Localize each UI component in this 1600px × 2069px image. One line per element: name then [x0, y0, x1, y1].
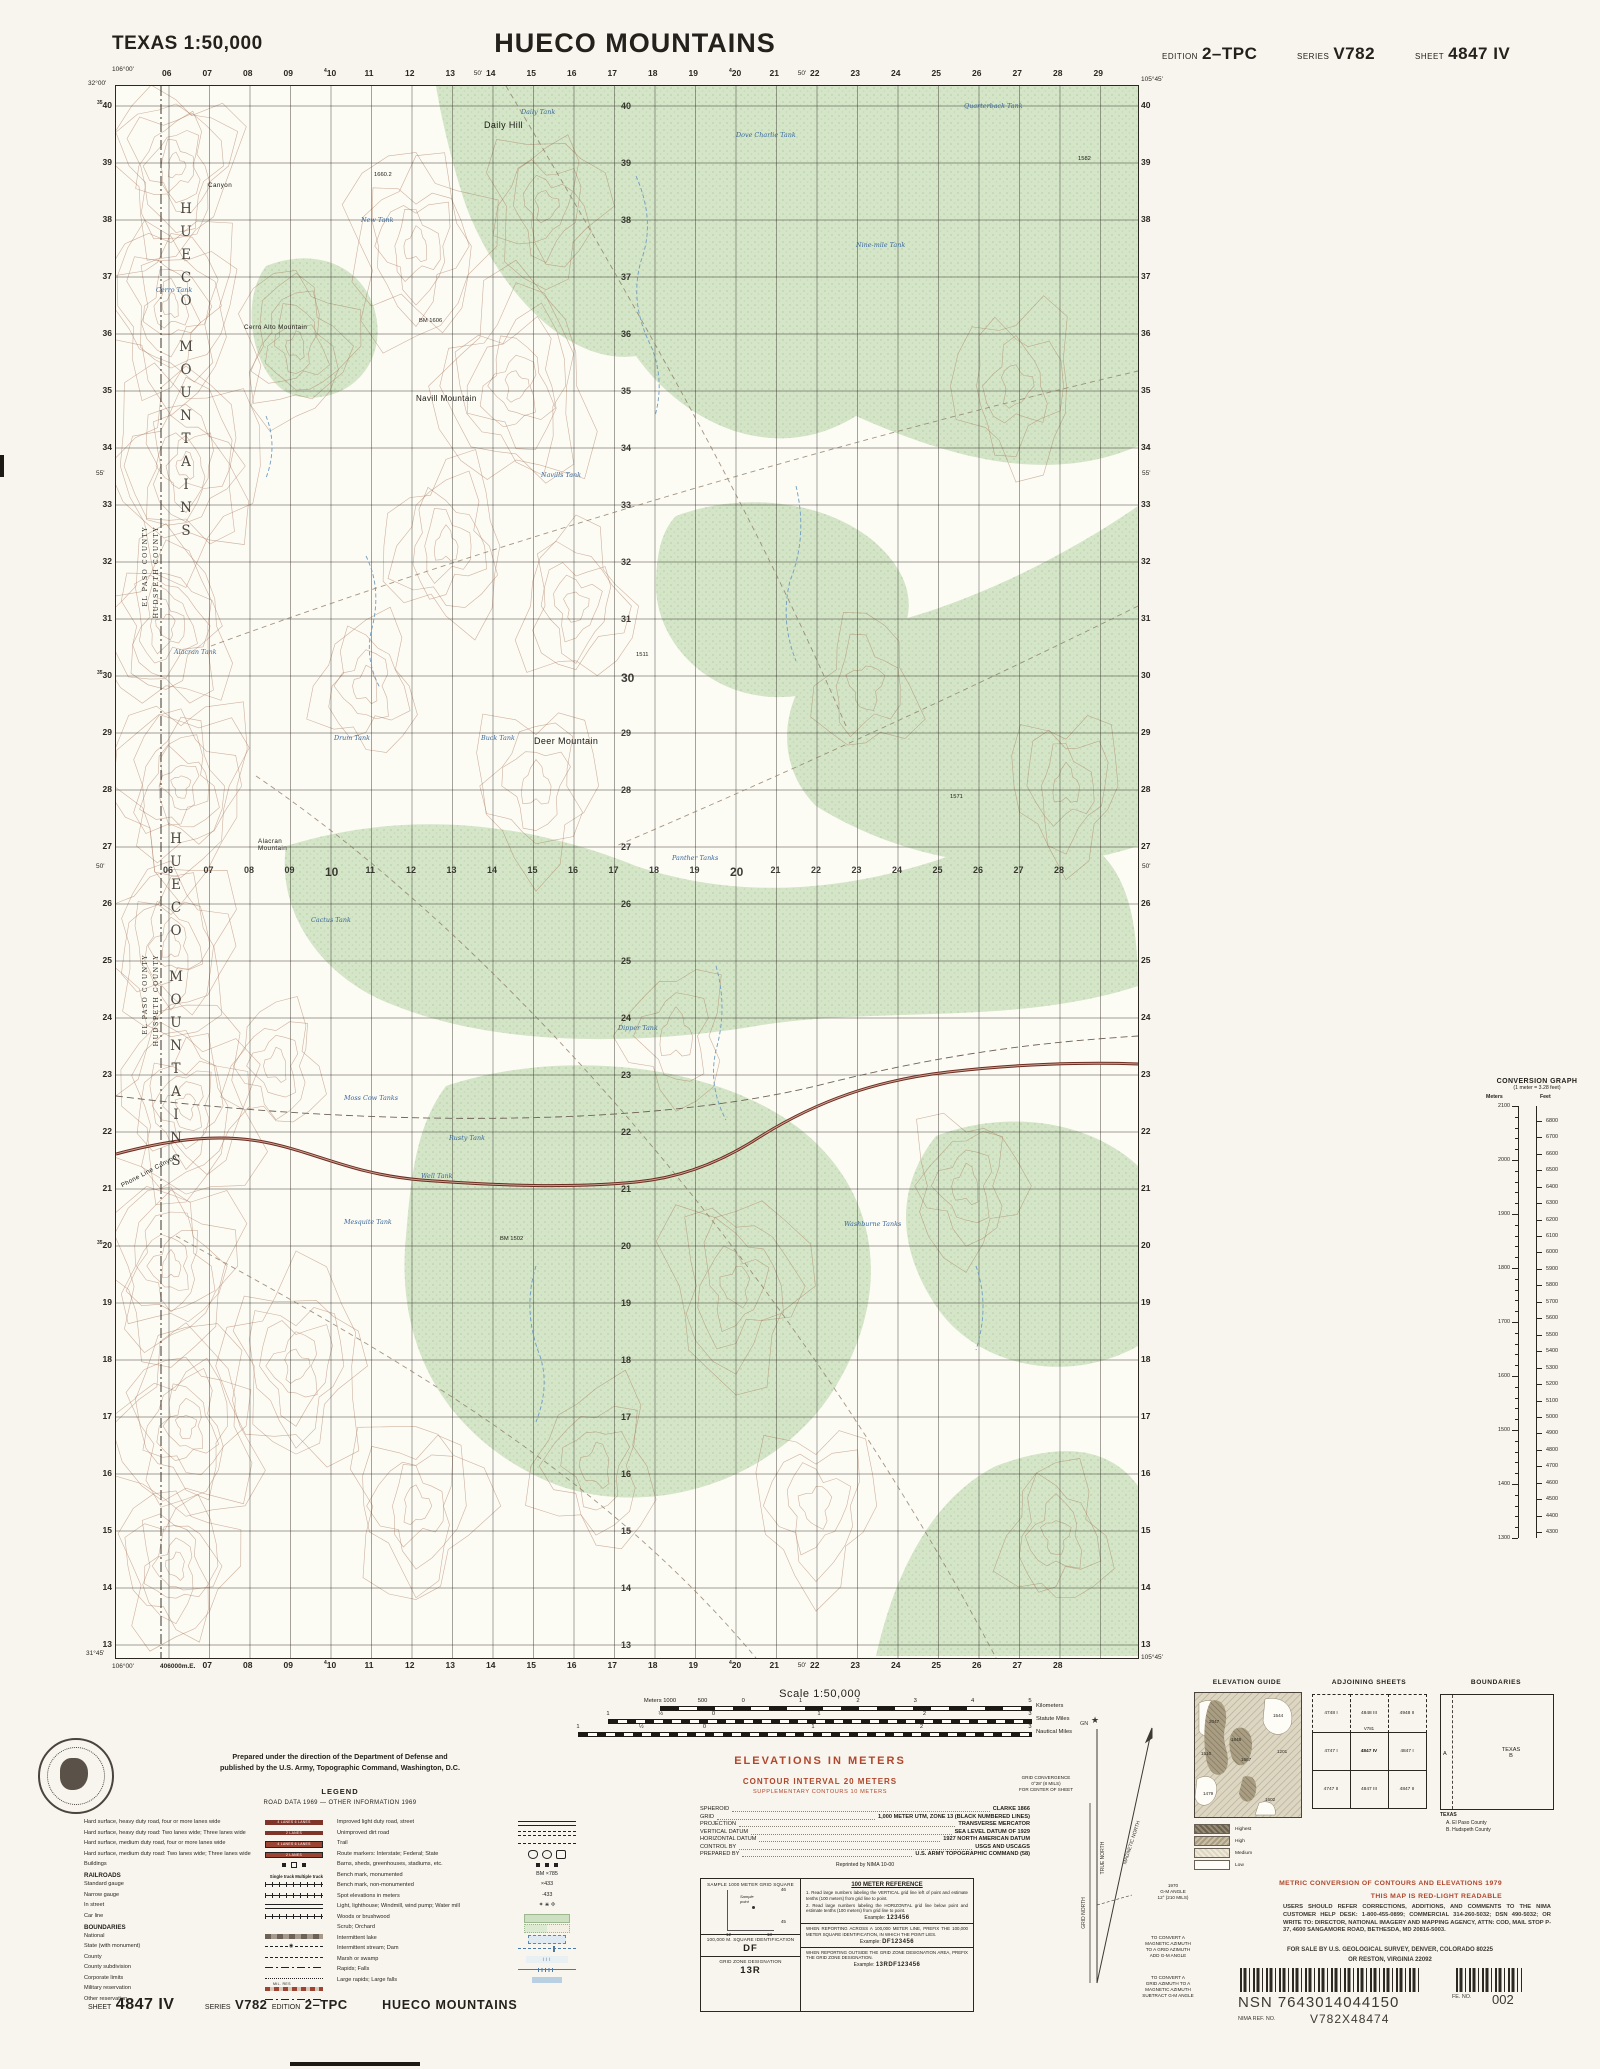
grid-northing-right: 20 — [1141, 1240, 1150, 1250]
corner-br-lon: 105°45' — [1141, 1654, 1163, 1661]
topo-map: 0607080910111213141516171819202122232425… — [115, 85, 1139, 1659]
grid-easting-mid: 18 — [649, 865, 659, 875]
feet-tick: 4600 — [1546, 1480, 1558, 1486]
grid-northing-right: 32 — [1141, 556, 1150, 566]
grid-easting-bottom: 27 — [1013, 1660, 1022, 1670]
boundaries-list: TEXAS A. El Paso County B. Hudspeth Coun… — [1440, 1812, 1491, 1835]
legend-symbol-county — [265, 1953, 323, 1962]
grid-easting-bottom: 24 — [891, 1660, 900, 1670]
feet-tick: 6700 — [1546, 1134, 1558, 1140]
legend-item-label: Trail — [337, 1840, 515, 1846]
meters-tick: 2100 — [1486, 1103, 1510, 1109]
ruler-tick — [1515, 1171, 1518, 1172]
grid-easting-bottom: 25 — [932, 1660, 941, 1670]
scale-tick-label: 0 — [742, 1698, 745, 1704]
legend-item: Spot elevations in meters·433 — [337, 1892, 576, 1901]
grid-easting-mid: 23 — [852, 865, 862, 875]
legend: Hard surface, heavy duty road, four or m… — [84, 1818, 576, 2005]
grid-easting-top: 12 — [405, 68, 414, 78]
feet-tick: 4400 — [1546, 1513, 1558, 1519]
grid-easting-bottom: 26 — [972, 1660, 981, 1670]
sheet-block: SHEET4847 IV — [1415, 44, 1510, 64]
grid-northing-right: 14 — [1141, 1582, 1150, 1592]
footer-title: HUECO MOUNTAINS — [382, 1998, 517, 2012]
grid-northing-left: 22 — [84, 1126, 112, 1136]
square-id-label: 100,000 M. SQUARE IDENTIFICATION — [705, 1937, 796, 1942]
grid-easting-bottom: 17 — [608, 1660, 617, 1670]
corner-tr-lon: 105°45' — [1141, 76, 1163, 83]
place-label: Canyon — [208, 182, 232, 189]
ruler-tick — [1515, 1257, 1518, 1258]
legend-item-label: Bench mark, monumented — [337, 1872, 515, 1878]
legend-item: Scrub; Orchard — [337, 1923, 576, 1932]
grid-easting-mid: 28 — [1054, 865, 1064, 875]
adjoining-sheet-cell: 4847 III — [1350, 1770, 1389, 1809]
grid-easting-top: 24 — [891, 68, 900, 78]
feet-tick: 6000 — [1546, 1249, 1558, 1255]
legend-symbol-band2m: 2 LANES — [265, 1850, 323, 1859]
meters-tick: 1700 — [1486, 1319, 1510, 1325]
scale-tick-label: 2 — [920, 1724, 923, 1730]
meters-tick: 1300 — [1486, 1535, 1510, 1541]
grid-northing-left: 29 — [84, 727, 112, 737]
corner-tl-lon: 106°00' — [112, 66, 134, 73]
grid-northing-left: 3530 — [84, 670, 112, 680]
legend-item-label: Woods or brushwood — [337, 1914, 515, 1920]
water-label: Drum Tank — [334, 734, 370, 742]
place-label: Deer Mountain — [534, 736, 598, 746]
ref-para2: WHEN REPORTING ACROSS A 100,000 METER LI… — [806, 1926, 968, 1937]
legend-item: Car line — [84, 1912, 323, 1921]
legend-item: Bench mark, non-monumented×433 — [337, 1881, 576, 1890]
credit-line1: Prepared under the direction of the Depa… — [130, 1752, 550, 1763]
legend-item-label: Car line — [84, 1913, 262, 1919]
meters-header: Meters — [1486, 1094, 1503, 1100]
datum-row: CONTROL BYUSGS AND USC&GS — [700, 1844, 1030, 1852]
scale-tick-label: 2 — [856, 1698, 859, 1704]
legend-symbol-rapids — [518, 1965, 576, 1974]
scale-tick-label: 3 — [914, 1698, 917, 1704]
grid-easting-bottom: 13 — [446, 1660, 455, 1670]
grid-easting-mid: 21 — [771, 865, 781, 875]
grid-northing-mid: 16 — [621, 1469, 631, 1479]
map-sheet-page: TEXAS 1:50,000 HUECO MOUNTAINS EDITION2–… — [0, 0, 1600, 2069]
grid-northing-mid: 30 — [621, 671, 634, 685]
legend-item: Trail — [337, 1839, 576, 1848]
minute-mark-right: 50' — [1142, 863, 1150, 870]
meters-tick: 1400 — [1486, 1481, 1510, 1487]
grid-northing-mid: 36 — [621, 329, 631, 339]
grid-easting-mid: 14 — [487, 865, 497, 875]
ruler-tick — [1515, 1354, 1518, 1355]
elevation-guide-value: 1479 — [1203, 1791, 1213, 1796]
grid-easting-mid: 13 — [447, 865, 457, 875]
adjoining-sheet-cell: 4847 II — [1388, 1770, 1427, 1809]
legend-item-label: State (with monument) — [84, 1943, 262, 1949]
boundaries-b: B — [1481, 1753, 1541, 1759]
legend-right-column: Improved light duty road, streetUnimprov… — [337, 1818, 576, 2005]
legend-section-header: BOUNDARIES — [84, 1924, 323, 1931]
grid-northing-mid: 27 — [621, 842, 631, 852]
grid-northing-left: 38 — [84, 214, 112, 224]
water-label: Cactus Tank — [311, 916, 351, 924]
ref-para3: WHEN REPORTING OUTSIDE THE GRID ZONE DES… — [806, 1950, 968, 1961]
grid-easting-top: 15 — [527, 68, 536, 78]
ruler-tick — [1515, 1398, 1518, 1399]
legend-item: Route markers: Interstate; Federal; Stat… — [337, 1850, 576, 1859]
legend-item-label: Narrow gauge — [84, 1892, 262, 1898]
zone-label: GRID ZONE DESIGNATION — [705, 1959, 796, 1964]
ruler-tick — [1515, 1300, 1518, 1301]
meters-tick: 1500 — [1486, 1427, 1510, 1433]
feet-tick: 6400 — [1546, 1184, 1558, 1190]
county-label-elpaso: EL PASO COUNTY — [142, 954, 149, 1035]
boundaries-list-title: TEXAS — [1440, 1812, 1491, 1820]
legend-item: Bench mark, monumentedBM ×785 — [337, 1871, 576, 1880]
scale-tick-label: Meters 1000 — [644, 1698, 676, 1704]
grid-easting-mid: 27 — [1014, 865, 1024, 875]
elevation-swatch-row: Medium — [1194, 1848, 1300, 1858]
scale-tick-label: 1 — [817, 1711, 820, 1717]
hundred-meter-reference: 100 METER REFERENCE 1. Read large number… — [801, 1879, 973, 2011]
ref-step2: 2. Read large numbers labeling the HORIZ… — [806, 1903, 968, 1914]
grid-easting-top: 27 — [1013, 68, 1022, 78]
ruler-tick — [1515, 1203, 1518, 1204]
ref-example2: Example: DF123456 — [806, 1939, 968, 1945]
grid-easting-bottom: 19 — [689, 1660, 698, 1670]
feet-tick: 6600 — [1546, 1151, 1558, 1157]
legend-item-label: Spot elevations in meters — [337, 1893, 515, 1899]
scale-tick-label: 1 — [799, 1698, 802, 1704]
grid-northing-mid: 25 — [621, 956, 631, 966]
legend-item: Marsh or swamp⌇⌇⌇ — [337, 1955, 576, 1964]
legend-title: LEGEND — [130, 1787, 550, 1796]
grid-easting-top: 18 — [648, 68, 657, 78]
feet-tick: 4800 — [1546, 1447, 1558, 1453]
ref-example1: Example: 123456 — [806, 1915, 968, 1921]
legend-item: Woods or brushwood — [337, 1913, 576, 1922]
legend-symbol-woods — [518, 1913, 576, 1922]
ruler-tick — [1515, 1506, 1518, 1507]
legend-item: County subdivision — [84, 1963, 323, 1972]
legend-item: Light, lighthouse; Windmill, wind pump; … — [337, 1902, 576, 1911]
scale-bar — [660, 1706, 1032, 1711]
legend-item: Narrow gauge — [84, 1891, 323, 1900]
sample-point-label: Sample point — [740, 1894, 754, 1904]
grid-northing-mid: 23 — [621, 1070, 631, 1080]
grid-northing-mid: 39 — [621, 158, 631, 168]
grid-northing-mid: 35 — [621, 386, 631, 396]
feet-tick: 5200 — [1546, 1381, 1558, 1387]
grid-northing-left: 32 — [84, 556, 112, 566]
corner-tl-lat: 32°00' — [88, 80, 106, 87]
ruler-tick — [1515, 1495, 1518, 1496]
corner-bl-lat: 31°45' — [86, 1650, 104, 1657]
grid-northing-mid: 40 — [621, 101, 631, 111]
grid-northing-mid: 28 — [621, 785, 631, 795]
scale-tick-label: 0 — [712, 1711, 715, 1717]
grid-easting-top: 07 — [203, 68, 212, 78]
grid-easting-top: 11 — [365, 68, 374, 78]
ruler-tick — [1536, 1318, 1542, 1319]
datum-row: PROJECTIONTRANSVERSE MERCATOR — [700, 1821, 1030, 1829]
grid-easting-mid: 19 — [690, 865, 700, 875]
legend-symbol-rrcar — [265, 1912, 323, 1921]
edition-block: EDITION2–TPC — [1162, 44, 1257, 64]
map-label-layer: 0607080910111213141516171819202122232425… — [116, 86, 1138, 1658]
grid-northing-mid: 14 — [621, 1583, 631, 1593]
nsn-number: NSN 7643014044150 — [1238, 1994, 1399, 2011]
legend-symbol-scrub — [518, 1923, 576, 1932]
ruler-tick — [1515, 1333, 1518, 1334]
water-label: Dove Charlie Tank — [736, 131, 796, 139]
grid-northing-right: 31 — [1141, 613, 1150, 623]
ruler-tick — [1515, 1408, 1518, 1409]
grid-northing-right: 39 — [1141, 157, 1150, 167]
grid-easting-mid: 10 — [325, 865, 338, 879]
ruler-tick — [1515, 1441, 1518, 1442]
place-label: Alacran Mountain — [258, 838, 287, 852]
ruler-tick — [1515, 1225, 1518, 1226]
water-label: Mesquite Tank — [344, 1218, 392, 1226]
legend-symbol-txt: ✶ ⋇ ✢ — [518, 1902, 576, 1911]
water-label: Daily Tank — [521, 108, 555, 116]
feet-tick: 5100 — [1546, 1398, 1558, 1404]
grid-easting-bottom: 14 — [486, 1660, 495, 1670]
legend-symbol-band4: 4 LANES 6 LANES — [265, 1818, 323, 1827]
nsn-barcode — [1240, 1968, 1422, 1992]
spot-elevation: BM 1606 — [419, 318, 442, 324]
minute-mark-top: 50' — [474, 70, 482, 77]
scale-tick-label: 0 — [703, 1724, 706, 1730]
legend-item: National — [84, 1932, 323, 1941]
legend-item: Hard surface, medium duty road, four or … — [84, 1839, 323, 1848]
for-sale-line2: OR RESTON, VIRGINIA 22092 — [1240, 1956, 1540, 1966]
legend-symbol-trail — [518, 1839, 576, 1848]
legend-symbol-milres: MIL. RES — [265, 1984, 323, 1993]
grid-easting-top: 17 — [608, 68, 617, 78]
fe-barcode — [1456, 1968, 1522, 1992]
svg-text:★: ★ — [1091, 1715, 1099, 1725]
legend-item: Unimproved dirt road — [337, 1829, 576, 1838]
grid-easting-bottom: 11 — [365, 1660, 374, 1670]
adjoining-sheets-grid: 4748 I4848 III4948 II4747 I4847 IV4847 I… — [1312, 1694, 1426, 1808]
legend-symbol-istream — [518, 1944, 576, 1953]
legend-item: Standard gauge — [84, 1880, 323, 1889]
legend-symbol-lrapids — [518, 1976, 576, 1985]
grid-easting-bottom: 21 — [770, 1660, 779, 1670]
grid-northing-mid: 19 — [621, 1298, 631, 1308]
gn-label: GN — [1080, 1721, 1088, 1727]
ruler-tick — [1515, 1419, 1518, 1420]
grid-easting-top: 06 — [162, 68, 171, 78]
ruler-tick — [1515, 1473, 1518, 1474]
legend-symbol-txt: BM ×785 — [518, 1871, 576, 1880]
spot-elevation: 1582 — [1078, 156, 1091, 162]
legend-symbol-rrnar — [265, 1891, 323, 1900]
ruler-tick — [1536, 1170, 1542, 1171]
legend-symbol-barns — [518, 1860, 576, 1869]
footer: SHEET 4847 IV SERIES V782 EDITION 2–TPC … — [88, 1996, 518, 2014]
grid-easting-top: 19 — [689, 68, 698, 78]
legend-symbol-rrstr — [265, 1901, 323, 1910]
legend-symbol-marsh: ⌇⌇⌇ — [518, 1955, 576, 1964]
minute-mark-right: 55' — [1142, 470, 1150, 477]
grid-easting-bottom: 12 — [405, 1660, 414, 1670]
elevation-swatch-row: Low — [1194, 1860, 1300, 1870]
feet-tick: 5600 — [1546, 1315, 1558, 1321]
ruler-tick — [1515, 1279, 1518, 1280]
ruler-tick — [1536, 1516, 1542, 1517]
ruler-tick — [1536, 1121, 1542, 1122]
datum-row: VERTICAL DATUMSEA LEVEL DATUM OF 1929 — [700, 1829, 1030, 1837]
grid-northing-mid: 26 — [621, 899, 631, 909]
grid-northing-right: 34 — [1141, 442, 1150, 452]
legend-item-label: Military reservation — [84, 1985, 262, 1991]
feet-tick: 5400 — [1546, 1348, 1558, 1354]
magnetic-north-label: MAGNETIC NORTH — [1122, 1820, 1142, 1865]
sheet-title: HUECO MOUNTAINS — [0, 28, 1270, 59]
ruler-tick — [1536, 1351, 1542, 1352]
users-note: USERS SHOULD REFER CORRECTIONS, ADDITION… — [1283, 1904, 1551, 1935]
legend-symbol-csub — [265, 1963, 323, 1972]
legend-item: Hard surface, heavy duty road: Two lanes… — [84, 1829, 323, 1838]
scale-bar — [578, 1732, 1032, 1737]
grid-northing-mid: 13 — [621, 1640, 631, 1650]
grid-easting-mid: 24 — [892, 865, 902, 875]
grid-easting-top: 14 — [486, 68, 495, 78]
legend-item: Barns, sheds, greenhouses, stadiums, etc… — [337, 1860, 576, 1869]
grid-easting-bottom: 22 — [810, 1660, 819, 1670]
grid-northing-mid: 22 — [621, 1127, 631, 1137]
place-label: Navill Mountain — [416, 394, 477, 403]
scale-tick-label: 4 — [971, 1698, 974, 1704]
true-north-label: TRUE NORTH — [1100, 1841, 1106, 1874]
grid-northing-left: 34 — [84, 442, 112, 452]
grid-northing-left: 17 — [84, 1411, 112, 1421]
scale-tick-label: 500 — [698, 1698, 708, 1704]
grid-northing-left: 31 — [84, 613, 112, 623]
ruler-tick — [1515, 1128, 1518, 1129]
place-label: Cerro Alto Mountain — [244, 324, 307, 331]
adjoining-sheet-cell: 4847 IV — [1350, 1732, 1389, 1771]
grid-northing-mid: 15 — [621, 1526, 631, 1536]
legend-item-label: Standard gauge — [84, 1881, 262, 1887]
grid-easting-mid: 08 — [244, 865, 254, 875]
grid-northing-mid: 24 — [621, 1013, 631, 1023]
grid-easting-top: 23 — [851, 68, 860, 78]
conversion-ruler: 2100200019001800170016001500140013006800… — [1478, 1106, 1596, 1546]
series-label: SERIES — [1297, 52, 1329, 61]
meters-tick: 2000 — [1486, 1157, 1510, 1163]
elevation-guide-value: 2047 — [1209, 1719, 1219, 1724]
grid-northing-right: 23 — [1141, 1069, 1150, 1079]
ruler-tick — [1515, 1160, 1518, 1161]
ruler-tick — [1536, 1384, 1542, 1385]
legend-item-label: Large rapids; Large falls — [337, 1977, 515, 1983]
grid-northing-left: 16 — [84, 1468, 112, 1478]
ruler-tick — [1536, 1466, 1542, 1467]
legend-item-label: Corporate limits — [84, 1975, 262, 1981]
legend-item-label: Scrub; Orchard — [337, 1924, 515, 1930]
grid-northing-right: 30 — [1141, 670, 1150, 680]
grid-num-45: 45 — [781, 1919, 786, 1924]
footer-edition-label: EDITION — [272, 2004, 300, 2011]
corner-bl-lon: 106°00' — [112, 1663, 134, 1670]
grid-easting-bottom: 15 — [527, 1660, 536, 1670]
datum-block: SPHEROIDCLARKE 1866GRID1,000 METER UTM, … — [700, 1806, 1030, 1859]
legend-symbol-ilake — [518, 1934, 576, 1943]
ref-title: 100 METER REFERENCE — [806, 1882, 968, 1888]
grid-northing-left: 28 — [84, 784, 112, 794]
grid-easting-top: 21 — [770, 68, 779, 78]
legend-item: In street — [84, 1901, 323, 1910]
grid-north-label: GRID NORTH — [1081, 1897, 1087, 1929]
water-label: Nine-mile Tank — [856, 241, 905, 249]
spot-elevation: BM 1502 — [500, 1236, 523, 1242]
grid-num-13: 13 — [767, 1932, 772, 1937]
feet-tick: 4700 — [1546, 1463, 1558, 1469]
grid-easting-bottom: 18 — [648, 1660, 657, 1670]
adjoining-sheet-cell: 4747 I — [1312, 1732, 1351, 1771]
grid-northing-right: 19 — [1141, 1297, 1150, 1307]
ruler-tick — [1515, 1430, 1518, 1431]
datum-row: HORIZONTAL DATUM1927 NORTH AMERICAN DATU… — [700, 1836, 1030, 1844]
grid-easting-bottom: 23 — [851, 1660, 860, 1670]
boundaries-box: A TEXAS B — [1440, 1694, 1554, 1810]
legend-item-label: Hard surface, medium duty road, four or … — [84, 1840, 262, 1846]
grid-northing-left: 37 — [84, 271, 112, 281]
ruler-tick — [1536, 1401, 1542, 1402]
declination-diagram: ★ GN TRUE NORTH GRID NORTH MAGNETIC NORT… — [1000, 1683, 1210, 2023]
feet-tick: 4500 — [1546, 1496, 1558, 1502]
legend-symbol-band4m: 4 LANES 6 LANES — [265, 1839, 323, 1848]
legend-item: Buildings — [84, 1860, 323, 1869]
feet-tick: 5000 — [1546, 1414, 1558, 1420]
feet-header: Feet — [1540, 1094, 1551, 1100]
grid-northing-left: 27 — [84, 841, 112, 851]
legend-item: County — [84, 1953, 323, 1962]
sample-point-dot — [752, 1906, 755, 1909]
grid-northing-right: 25 — [1141, 955, 1150, 965]
feet-tick: 6200 — [1546, 1217, 1558, 1223]
legend-item-label: Route markers: Interstate; Federal; Stat… — [337, 1851, 515, 1857]
legend-item-label: Barns, sheds, greenhouses, stadiums, etc… — [337, 1861, 515, 1867]
grid-easting-mid: 20 — [730, 865, 743, 879]
edition-label: EDITION — [1162, 52, 1198, 61]
sample-grid-diagram: 46 45 12 13 Sample point — [727, 1890, 774, 1931]
adjoining-sheet-cell: 4747 II — [1312, 1770, 1351, 1809]
minute-mark-bottom: 50' — [798, 1662, 806, 1669]
legend-symbol-txt: ×433 — [518, 1881, 576, 1890]
meters-tick: 1600 — [1486, 1373, 1510, 1379]
ruler-tick — [1515, 1311, 1518, 1312]
grid-northing-left: 21 — [84, 1183, 112, 1193]
footer-sheet: 4847 IV — [116, 1996, 175, 2013]
grid-easting-mid: 15 — [528, 865, 538, 875]
grid-northing-mid: 17 — [621, 1412, 631, 1422]
grid-northing-right: 33 — [1141, 499, 1150, 509]
grid-num-46: 46 — [781, 1887, 786, 1892]
water-label: Washburne Tanks — [844, 1220, 901, 1228]
elevation-swatch-row: Highest — [1194, 1824, 1300, 1834]
grid-northing-mid: 21 — [621, 1184, 631, 1194]
footer-edition: 2–TPC — [305, 1997, 348, 2012]
ruler-tick — [1515, 1322, 1518, 1323]
grid-easting-top: 08 — [243, 68, 252, 78]
ruler-tick — [1515, 1365, 1518, 1366]
reprint-note: Reprinted by NIMA 10-00 — [700, 1862, 1030, 1868]
